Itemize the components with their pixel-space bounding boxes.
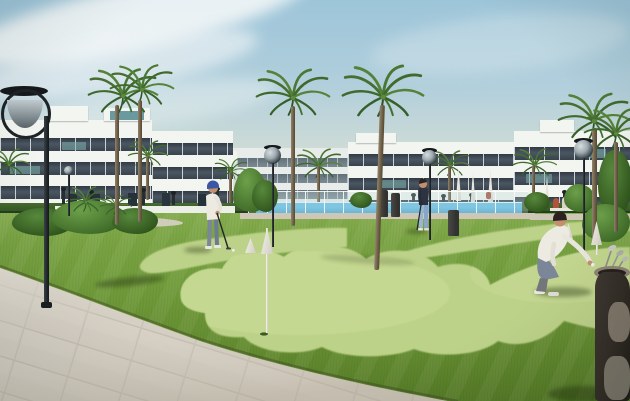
golfer-standing (410, 178, 436, 236)
shoe (205, 246, 212, 249)
walkway-tone (0, 268, 458, 401)
doorway (162, 193, 170, 206)
roof-penthouse (356, 133, 396, 143)
lamp-base (41, 302, 52, 308)
shoe (424, 228, 429, 231)
balcony-glass (62, 142, 86, 150)
bollard-light (142, 191, 145, 205)
bush (350, 192, 372, 208)
leg (207, 218, 212, 246)
golfer-crouching (528, 206, 596, 300)
shin (536, 278, 548, 292)
palm-crown (110, 64, 174, 105)
leg (424, 203, 428, 228)
palm-trunk (146, 156, 149, 200)
street-lamp-small (64, 166, 74, 216)
shoe (214, 245, 221, 248)
lamp-pole (68, 175, 70, 216)
palm-crown-small (513, 148, 557, 176)
palm-trunk (614, 142, 618, 232)
arm (553, 244, 555, 264)
bollard-light (172, 194, 175, 205)
leg (214, 219, 219, 245)
street-lamp-large (0, 82, 60, 312)
lamp-globe (422, 150, 437, 165)
golf-ball (232, 249, 235, 252)
arm (420, 192, 421, 204)
shoe (418, 228, 423, 231)
bag-pocket (608, 302, 630, 342)
hair (553, 212, 567, 221)
palm-trunk (291, 106, 295, 226)
golf-bag (592, 244, 630, 401)
putter-head (226, 248, 231, 250)
cap (207, 180, 219, 189)
lamp-globe (574, 140, 593, 159)
lamp-globe (264, 147, 281, 164)
palm-trunk (115, 105, 119, 225)
arm (564, 236, 590, 262)
lamp-globe (64, 166, 73, 175)
golfer-putting (188, 178, 232, 256)
palm-trunk (138, 100, 142, 222)
shoe (548, 292, 559, 296)
lamp-pole (44, 116, 49, 306)
bag-pocket (604, 356, 630, 400)
leg (537, 258, 559, 280)
lamp-pole (272, 163, 274, 247)
scene (0, 0, 630, 401)
